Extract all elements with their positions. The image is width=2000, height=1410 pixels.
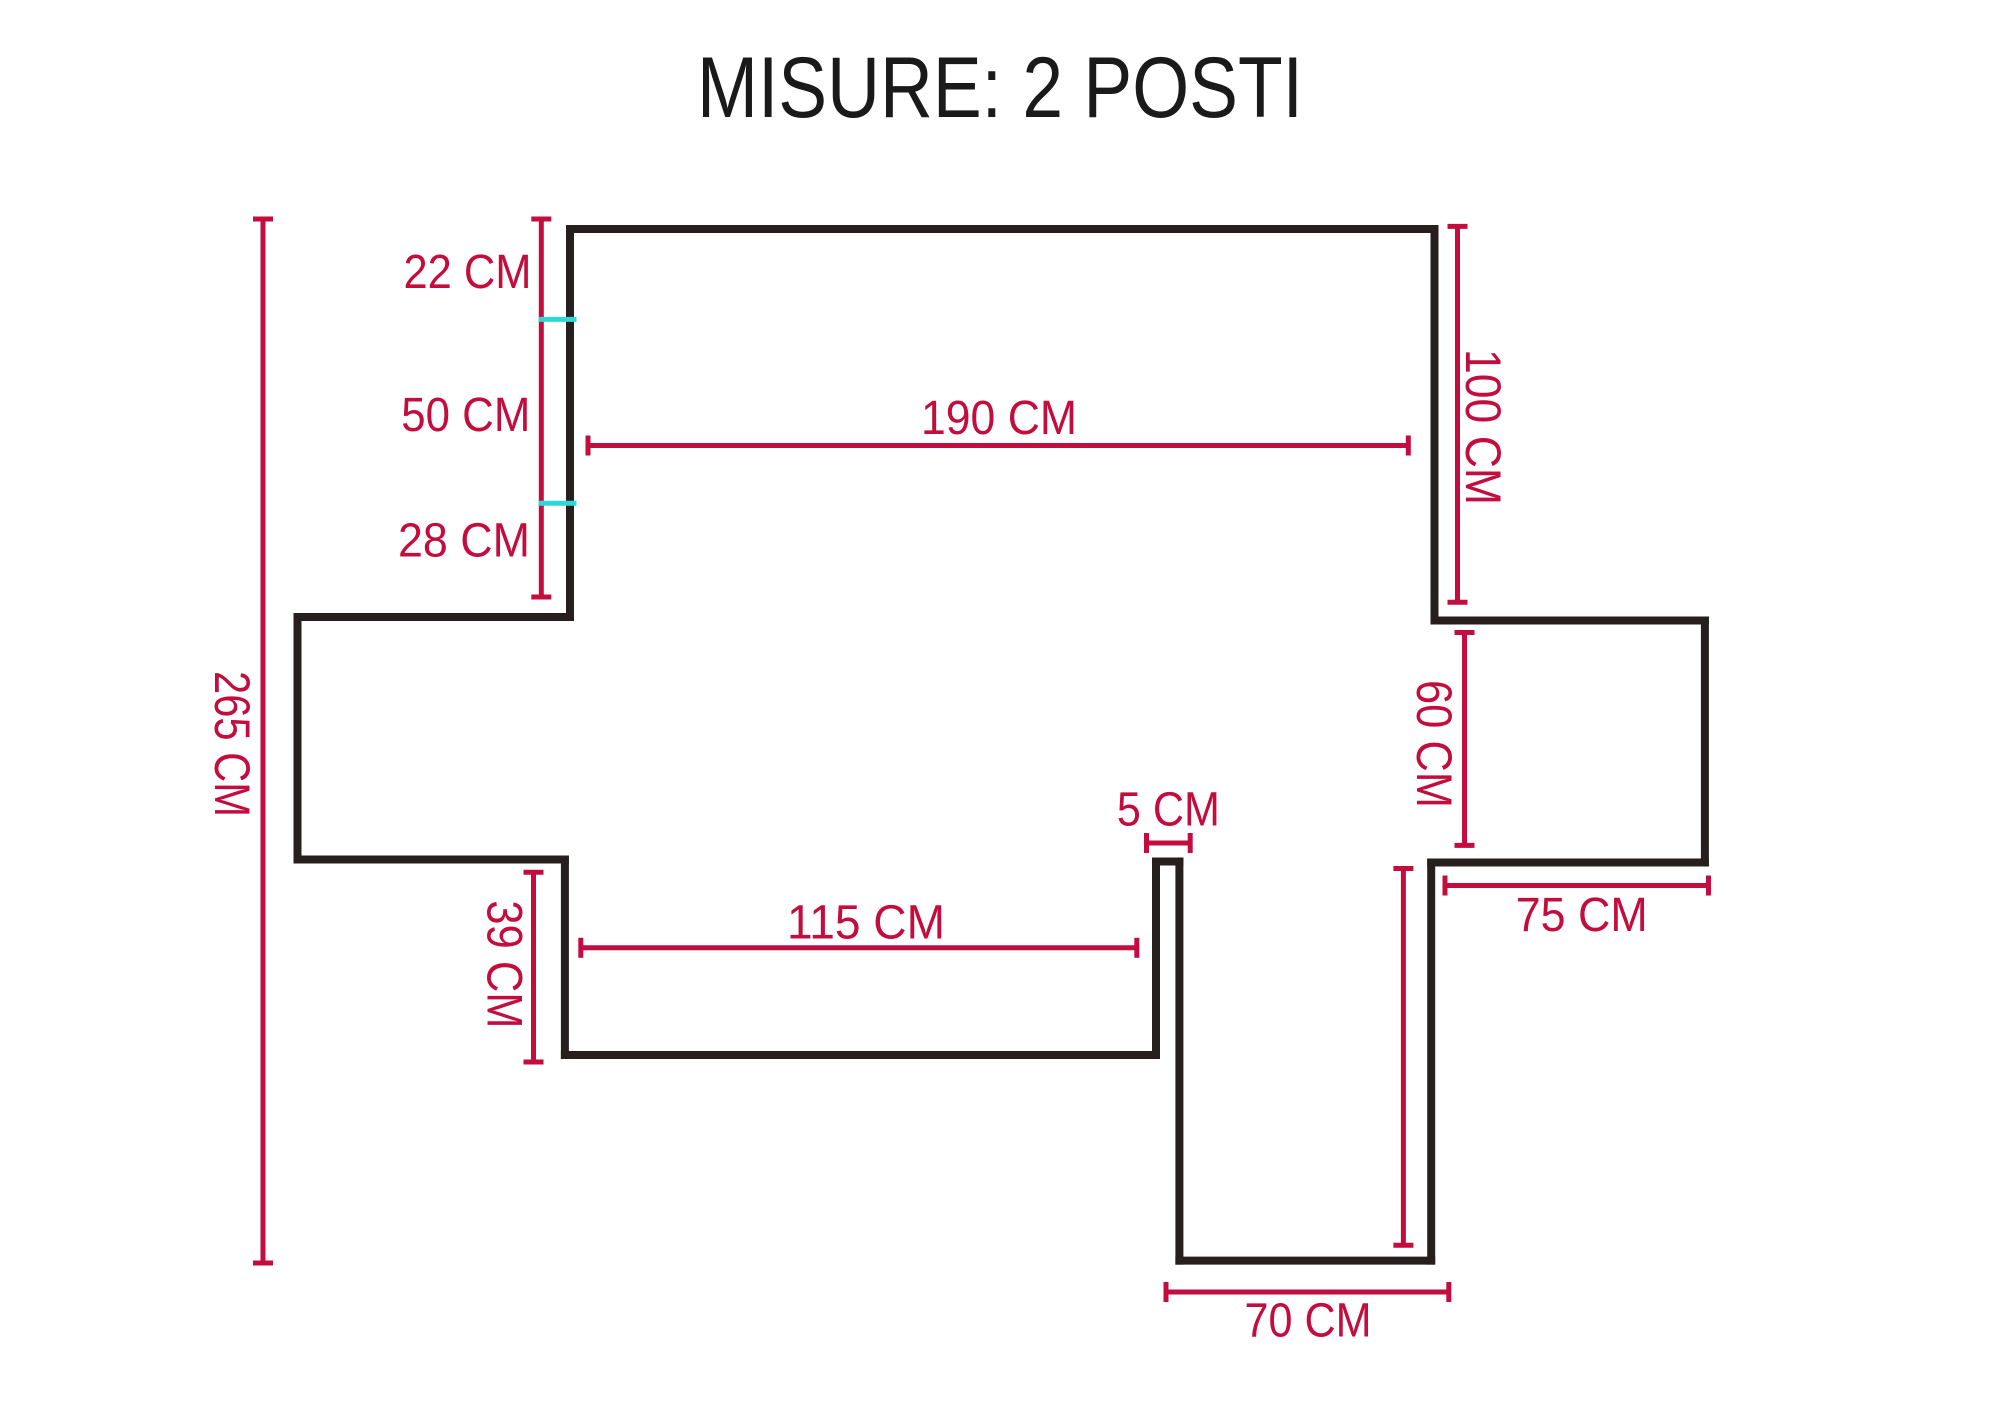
svg-text:115 CM: 115 CM [787, 897, 945, 950]
svg-text:5 CM: 5 CM [1117, 784, 1220, 837]
svg-text:190 CM: 190 CM [921, 392, 1077, 445]
svg-text:MISURE: 2 POSTI: MISURE: 2 POSTI [697, 40, 1303, 136]
svg-text:70 CM: 70 CM [1245, 1295, 1372, 1348]
svg-text:39 CM: 39 CM [477, 900, 533, 1028]
svg-text:22 CM: 22 CM [404, 246, 532, 299]
svg-text:75 CM: 75 CM [1516, 889, 1648, 942]
svg-text:60 CM: 60 CM [1406, 680, 1462, 808]
svg-text:50 CM: 50 CM [401, 389, 530, 442]
svg-text:265 CM: 265 CM [204, 671, 260, 817]
svg-text:28 CM: 28 CM [398, 514, 530, 567]
svg-text:100 CM: 100 CM [1455, 349, 1511, 505]
